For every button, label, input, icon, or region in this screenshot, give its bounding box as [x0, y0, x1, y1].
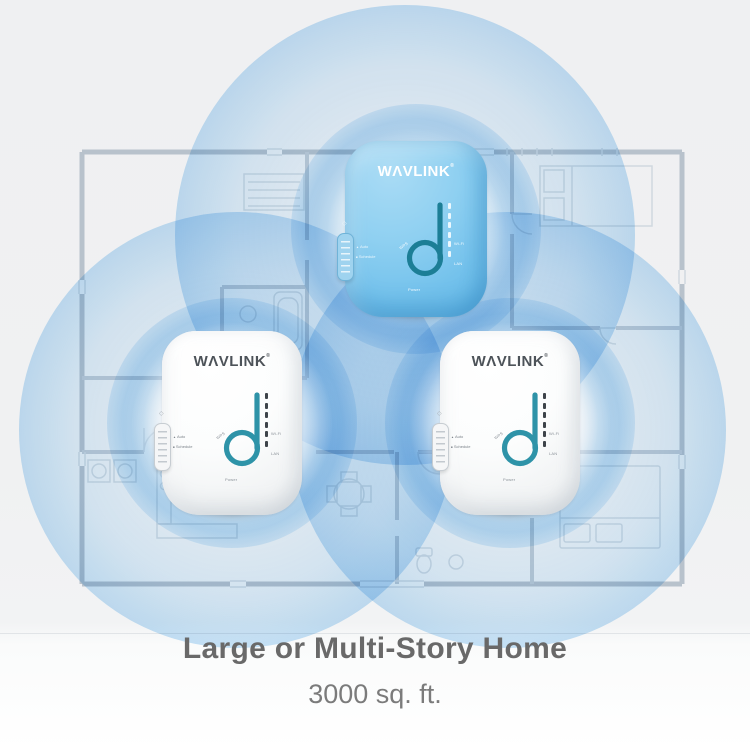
lamp-icon: ◇ [437, 411, 442, 417]
led-dash-icon [448, 251, 451, 257]
led-dash-icon [543, 393, 546, 399]
led-dash-icon [265, 422, 268, 428]
lamp-icon: ◇ [342, 221, 347, 227]
triangle-bullet-icon: ▲ [451, 435, 454, 439]
led-dash-icon [543, 412, 546, 418]
wifi-extender-device-top: WΛVLINK® WPS Power Wi-Fi LAN ◇ ▲Auto ■Sc… [345, 141, 487, 317]
led-dash-icon [265, 393, 268, 399]
wifi-label: Wi-Fi [549, 432, 559, 436]
page-background: WΛVLINK® WPS Power Wi-Fi LAN ◇ ▲Auto ■Sc… [0, 0, 750, 750]
switch-option-auto: ▲Auto [356, 242, 376, 252]
switch-option-auto: ▲Auto [451, 432, 471, 442]
led-dash-icon [448, 213, 451, 219]
triangle-bullet-icon: ▲ [173, 435, 176, 439]
led-dash-icon [448, 203, 451, 209]
lan-label: LAN [271, 452, 279, 456]
led-dash-icon [265, 412, 268, 418]
mode-switch-labels: ▲Auto ■Schedule [173, 432, 193, 451]
wifi-label: Wi-Fi [271, 432, 281, 436]
lan-label: LAN [549, 452, 557, 456]
switch-option-schedule: ■Schedule [356, 252, 376, 262]
wifi-label: Wi-Fi [454, 242, 464, 246]
registered-mark: ® [266, 353, 270, 359]
mode-switch [337, 233, 354, 281]
led-dash-icon [543, 403, 546, 409]
switch-option-auto-label: Auto [177, 434, 185, 439]
led-dash-icon [448, 222, 451, 228]
caption-subtitle: 3000 sq. ft. [0, 679, 750, 710]
square-bullet-icon: ■ [356, 255, 358, 259]
brand-logo: WΛVLINK® [162, 353, 302, 370]
mode-switch [432, 423, 449, 471]
brand-logo-text: WΛVLINK [194, 353, 267, 370]
led-indicator-column [265, 393, 268, 447]
wifi-extender-device-right: WΛVLINK® WPS Power Wi-Fi LAN ◇ ▲Auto ■Sc… [440, 331, 580, 515]
switch-option-schedule-label: Schedule [176, 444, 193, 449]
switch-option-schedule-label: Schedule [359, 254, 376, 259]
switch-option-schedule: ■Schedule [451, 442, 471, 452]
wifi-extender-device-left: WΛVLINK® WPS Power Wi-Fi LAN ◇ ▲Auto ■Sc… [162, 331, 302, 515]
switch-option-auto-label: Auto [360, 244, 368, 249]
lamp-icon: ◇ [159, 411, 164, 417]
led-dash-icon [265, 403, 268, 409]
led-dash-icon [448, 241, 451, 247]
square-bullet-icon: ■ [173, 445, 175, 449]
led-dash-icon [543, 431, 546, 437]
led-indicator-column [448, 203, 451, 257]
caption: Large or Multi-Story Home 3000 sq. ft. [0, 632, 750, 710]
lan-label: LAN [454, 262, 462, 266]
switch-option-auto-label: Auto [455, 434, 463, 439]
device-body: WΛVLINK® WPS Power Wi-Fi LAN ◇ ▲Auto ■Sc… [345, 141, 487, 317]
power-label: Power [408, 288, 420, 292]
mode-switch-labels: ▲Auto ■Schedule [356, 242, 376, 261]
led-dash-icon [265, 431, 268, 437]
switch-option-schedule-label: Schedule [454, 444, 471, 449]
brand-logo-text: WΛVLINK [378, 163, 451, 180]
led-dash-icon [543, 441, 546, 447]
led-dash-icon [448, 232, 451, 238]
led-dash-icon [265, 441, 268, 447]
caption-title: Large or Multi-Story Home [0, 632, 750, 666]
led-indicator-column [543, 393, 546, 447]
switch-option-schedule: ■Schedule [173, 442, 193, 452]
device-body: WΛVLINK® WPS Power Wi-Fi LAN ◇ ▲Auto ■Sc… [162, 331, 302, 515]
power-label: Power [225, 478, 237, 482]
brand-logo: WΛVLINK® [345, 163, 487, 180]
power-label: Power [503, 478, 515, 482]
mode-switch [154, 423, 171, 471]
triangle-bullet-icon: ▲ [356, 245, 359, 249]
registered-mark: ® [544, 353, 548, 359]
brand-logo-text: WΛVLINK [472, 353, 545, 370]
registered-mark: ® [450, 163, 454, 169]
mode-switch-labels: ▲Auto ■Schedule [451, 432, 471, 451]
switch-option-auto: ▲Auto [173, 432, 193, 442]
brand-logo: WΛVLINK® [440, 353, 580, 370]
square-bullet-icon: ■ [451, 445, 453, 449]
device-body: WΛVLINK® WPS Power Wi-Fi LAN ◇ ▲Auto ■Sc… [440, 331, 580, 515]
led-dash-icon [543, 422, 546, 428]
